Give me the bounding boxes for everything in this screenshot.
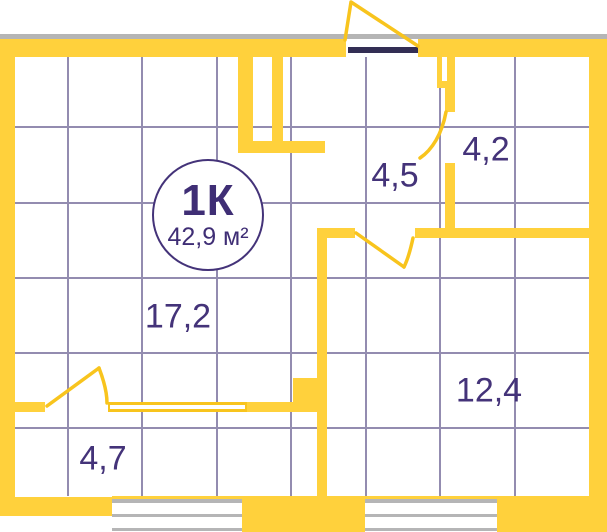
apartment-badge: 1К 42,9 м² xyxy=(152,159,264,271)
bedroom-door-leaf xyxy=(356,233,404,267)
room-area-label-balcony: 4,7 xyxy=(79,440,126,479)
room-area-label-hallway: 4,5 xyxy=(371,157,418,196)
room-area-label-bathroom: 4,2 xyxy=(462,131,509,170)
floor-plan: 1К 42,9 м² 4,5 4,2 17,2 12,4 4,7 xyxy=(0,0,607,532)
apartment-total-area: 42,9 м² xyxy=(167,223,248,252)
balcony-door-swing xyxy=(99,368,107,403)
entrance-door-swing xyxy=(345,2,418,46)
bathroom-door-swing xyxy=(420,112,446,158)
balcony-door-leaf xyxy=(47,368,99,406)
bedroom-door-swing xyxy=(404,238,413,267)
room-area-label-bedroom: 12,4 xyxy=(456,372,522,411)
apartment-type-label: 1К xyxy=(181,179,234,223)
room-area-label-living: 17,2 xyxy=(145,298,211,337)
